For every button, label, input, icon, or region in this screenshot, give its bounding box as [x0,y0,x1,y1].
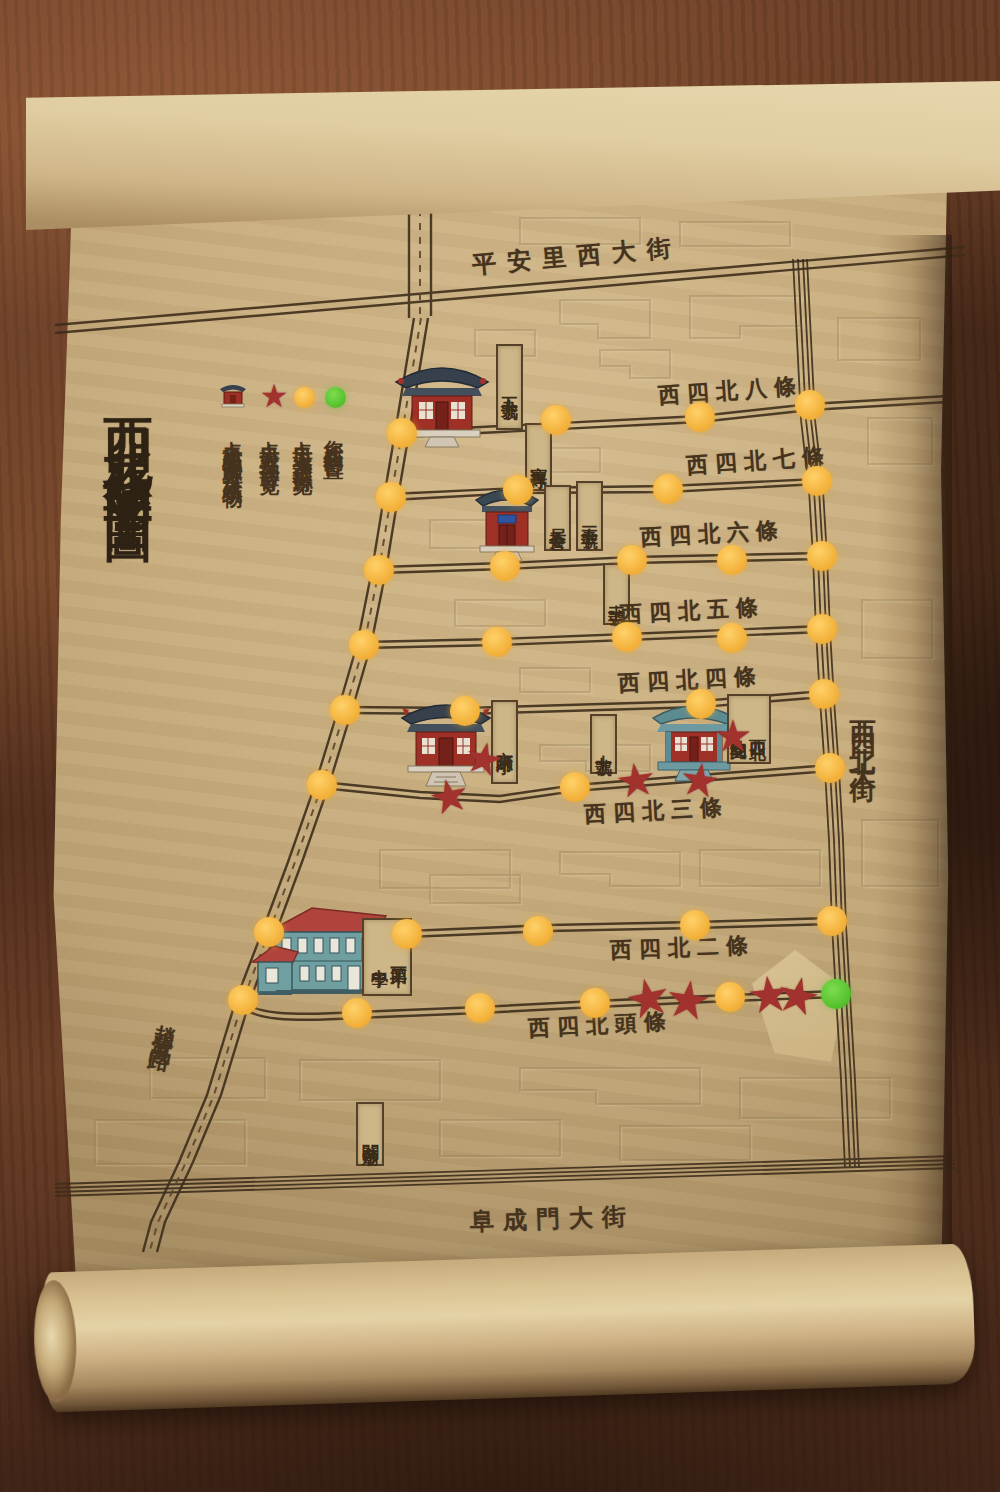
legend-star-icon: ★ [257,379,291,413]
legend-yellow-dot-icon [294,387,315,408]
voice-tour-star-marker[interactable]: ★ [659,971,718,1030]
panorama-dot-marker[interactable] [465,993,495,1023]
panorama-dot-marker[interactable] [364,555,394,585]
place-box-no59: 五十九號 [496,344,523,430]
panorama-dot-marker[interactable] [450,696,480,726]
panorama-dot-marker[interactable] [349,630,379,660]
panorama-dot-marker[interactable] [653,474,683,504]
map-title: 西四北八條胡同平面圖 [104,380,153,490]
voice-tour-star-marker[interactable]: ★ [458,733,510,785]
panorama-dot-marker[interactable] [490,551,520,581]
panorama-dot-marker[interactable] [680,910,710,940]
panorama-dot-marker[interactable] [342,998,372,1028]
panorama-dot-marker[interactable] [815,753,845,783]
panorama-dot-marker[interactable] [612,622,642,652]
panorama-dot-marker[interactable] [503,475,533,505]
voice-tour-star-marker[interactable]: ★ [711,714,755,758]
panorama-dot-marker[interactable] [392,919,422,949]
street-label-xisibei-avenue: 西四北大街 [845,700,880,770]
panorama-dot-marker[interactable] [685,402,715,432]
panorama-dot-marker[interactable] [228,985,258,1015]
legend-caption-panorama: 点击进入全景虚拟游览 [292,424,314,464]
panorama-dot-marker[interactable] [523,916,553,946]
panorama-dot-marker[interactable] [807,614,837,644]
legend-green-dot-icon [325,387,346,408]
voice-tour-star-marker[interactable]: ★ [610,754,662,806]
panorama-dot-marker[interactable] [560,772,590,802]
panorama-dot-marker[interactable] [807,541,837,571]
scroll-bottom-roll [40,1243,976,1412]
panorama-dot-marker[interactable] [254,917,284,947]
legend-building-icon [219,380,247,414]
panorama-dot-marker[interactable] [376,482,406,512]
panorama-dot-marker[interactable] [617,545,647,575]
panorama-dot-marker[interactable] [541,405,571,435]
place-box-residents-committee: 居委會 [544,485,571,551]
hutong-scroll-map: 五十九號 寶禪寺 居委會 三十五號 十三號 京師附小 十九號 西四北 幼兒園 第… [0,0,1000,1492]
panorama-dot-marker[interactable] [809,679,839,709]
panorama-dot-marker[interactable] [387,418,417,448]
legend-caption-voice-tour: 点击进入互动语音导览 [259,424,281,464]
panorama-dot-marker[interactable] [715,982,745,1012]
place-box-no35: 三十五號 [576,481,603,551]
panorama-dot-marker[interactable] [330,695,360,725]
panorama-dot-marker[interactable] [307,770,337,800]
panorama-dot-marker[interactable] [717,623,747,653]
legend-caption-current-location: 您所在的位置 [323,424,345,448]
panorama-dot-marker[interactable] [482,627,512,657]
panorama-dot-marker[interactable] [817,906,847,936]
panorama-dot-marker[interactable] [717,545,747,575]
legend-caption-building: 点击建筑物图标可进入建筑物 [222,424,244,476]
panorama-dot-marker[interactable] [580,988,610,1018]
street-label-hutong-2: 西四北二條 [610,930,756,965]
panorama-dot-marker[interactable] [802,466,832,496]
place-box-guandi-temple: 關帝廟 [356,1102,384,1166]
voice-tour-star-marker[interactable]: ★ [674,754,726,806]
panorama-dot-marker[interactable] [795,390,825,420]
voice-tour-star-marker[interactable]: ★ [768,966,827,1025]
street-label-fuchengmen: 阜成門大街 [469,1200,635,1238]
